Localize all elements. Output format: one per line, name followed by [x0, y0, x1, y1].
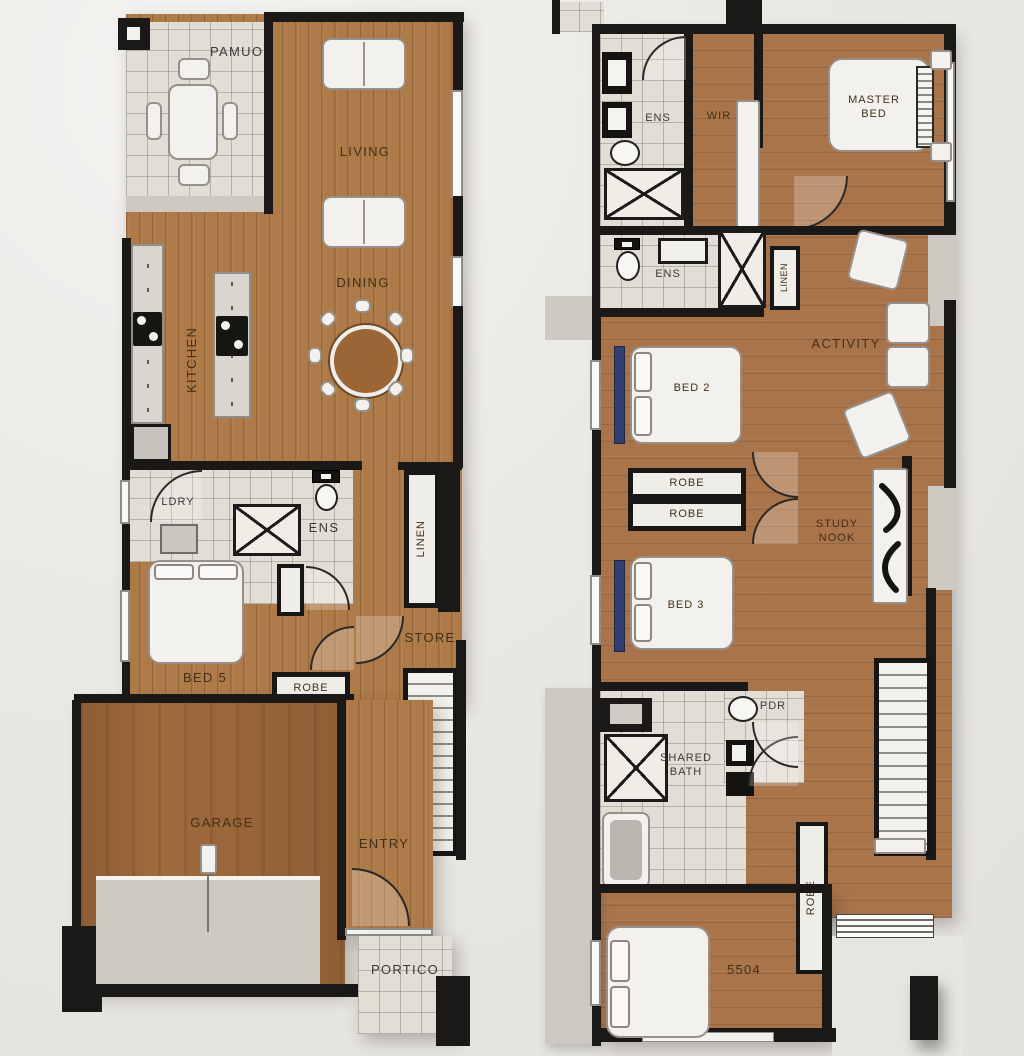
wall — [122, 524, 130, 558]
bedside-table — [930, 50, 952, 70]
wall — [726, 0, 762, 32]
pillow — [610, 940, 630, 982]
store-label: STORE — [396, 630, 464, 646]
dining-chair — [354, 299, 371, 313]
window — [590, 360, 601, 430]
entry-step — [345, 928, 433, 936]
wall — [596, 884, 832, 893]
toilet — [315, 484, 338, 511]
shelf — [874, 838, 926, 854]
floor-plan-canvas: PAMUON LIVING DINING KITCHEN LDRY ENS L — [0, 0, 1024, 1056]
pillow — [634, 562, 652, 600]
staircase — [874, 658, 932, 856]
outdoor-chair — [178, 164, 210, 186]
entry-label: ENTRY — [344, 836, 424, 852]
bed3-label: BED 3 — [646, 599, 726, 613]
robe-label: ROBE — [669, 477, 704, 491]
wall — [596, 308, 764, 317]
background-cut — [832, 936, 962, 1056]
wall — [122, 470, 130, 480]
bedside-table — [930, 142, 952, 162]
kitchen-label: KITCHEN — [184, 300, 200, 420]
garage-door-motor — [200, 844, 217, 874]
wall — [264, 12, 464, 22]
pillow — [634, 396, 652, 436]
laundry-label: LDRY — [146, 496, 210, 510]
side-ledge — [545, 296, 598, 340]
wall — [596, 226, 956, 235]
pillow — [198, 564, 238, 580]
wall — [552, 0, 560, 34]
robe-lower: ROBE — [628, 499, 746, 531]
shower — [604, 168, 684, 220]
linen-label: LINEN — [779, 263, 790, 292]
vanity — [277, 564, 304, 616]
bed-head — [916, 66, 934, 148]
window — [120, 590, 130, 662]
dining-chair — [308, 347, 322, 364]
bed4-label: 5504 — [702, 962, 786, 978]
bed2-label: BED 2 — [652, 382, 732, 396]
pillow — [634, 352, 652, 392]
cooktop — [133, 312, 162, 346]
bed5-label: BED 5 — [162, 670, 248, 686]
desk-chair — [876, 478, 906, 596]
wall — [122, 461, 362, 470]
wall — [122, 238, 131, 470]
basin — [610, 704, 642, 724]
wall — [453, 306, 463, 468]
wall — [596, 682, 748, 691]
dining-chair — [354, 398, 371, 412]
wall — [453, 12, 463, 94]
pillow — [154, 564, 194, 580]
linen-cupboard: LINEN — [404, 470, 440, 608]
shared-bath-label: SHARED BATH — [648, 752, 724, 780]
pavilion-post-cap — [127, 27, 140, 40]
master-bed-label: MASTER BED — [838, 94, 910, 122]
wall — [62, 984, 358, 997]
window — [590, 575, 601, 645]
linen-cupboard: LINEN — [770, 246, 800, 310]
activity-label: ACTIVITY — [798, 336, 894, 352]
side-ledge — [928, 486, 958, 590]
outdoor-chair — [146, 102, 162, 140]
wall — [592, 430, 601, 575]
window — [946, 62, 955, 202]
pavilion-edge — [126, 196, 272, 212]
window-frame — [614, 560, 625, 652]
toilet — [616, 251, 640, 281]
island-cooktop — [216, 316, 248, 356]
wall — [264, 14, 273, 214]
wall — [438, 464, 460, 612]
garage-door-track — [207, 874, 209, 932]
bathtub-basin — [610, 820, 642, 880]
sofa-divider — [363, 42, 365, 86]
garage-label: GARAGE — [168, 815, 276, 831]
window-frame — [614, 346, 625, 444]
cabinet-door — [732, 745, 746, 761]
window — [120, 480, 130, 524]
study-nook-label: STUDY NOOK — [798, 518, 876, 546]
wall — [596, 24, 956, 34]
pillow — [610, 986, 630, 1028]
fridge — [131, 424, 171, 462]
armchair — [886, 346, 930, 388]
robe-label: ROBE — [669, 508, 704, 522]
wall — [337, 700, 346, 940]
louver-steps — [836, 914, 934, 938]
dining-label: DINING — [320, 275, 406, 291]
window — [451, 256, 463, 308]
sofa-divider — [363, 200, 365, 244]
ensuite-mid-label: ENS — [640, 268, 696, 282]
shower — [718, 230, 766, 308]
wall — [122, 554, 130, 590]
portico-column — [436, 976, 470, 1046]
ensuite-top-label: ENS — [630, 112, 686, 126]
toilet — [610, 140, 640, 166]
window — [590, 940, 601, 1006]
washer — [160, 524, 198, 554]
outdoor-table — [168, 84, 218, 160]
living-label: LIVING — [322, 144, 408, 160]
wall — [453, 196, 463, 258]
vanity — [658, 238, 708, 264]
wardrobe — [736, 100, 760, 230]
robe-upper: ROBE — [628, 468, 746, 499]
wall — [456, 640, 466, 860]
armchair — [886, 302, 930, 344]
outdoor-chair — [222, 102, 238, 140]
toilet-tank — [614, 238, 640, 250]
basin — [608, 108, 626, 130]
pavilion-label: PAMUON — [190, 44, 294, 60]
shower — [233, 504, 301, 556]
window — [451, 90, 463, 198]
dining-chair — [400, 347, 414, 364]
outdoor-chair — [178, 58, 210, 80]
linen-label: LINEN — [415, 520, 429, 557]
ensuite-label: ENS — [296, 520, 352, 536]
basin — [608, 60, 626, 86]
wall — [74, 694, 354, 703]
wall — [944, 300, 956, 488]
powder-label: PDR — [748, 700, 798, 714]
toilet-tank — [312, 470, 340, 483]
wall — [822, 890, 832, 1036]
column — [910, 976, 938, 1040]
